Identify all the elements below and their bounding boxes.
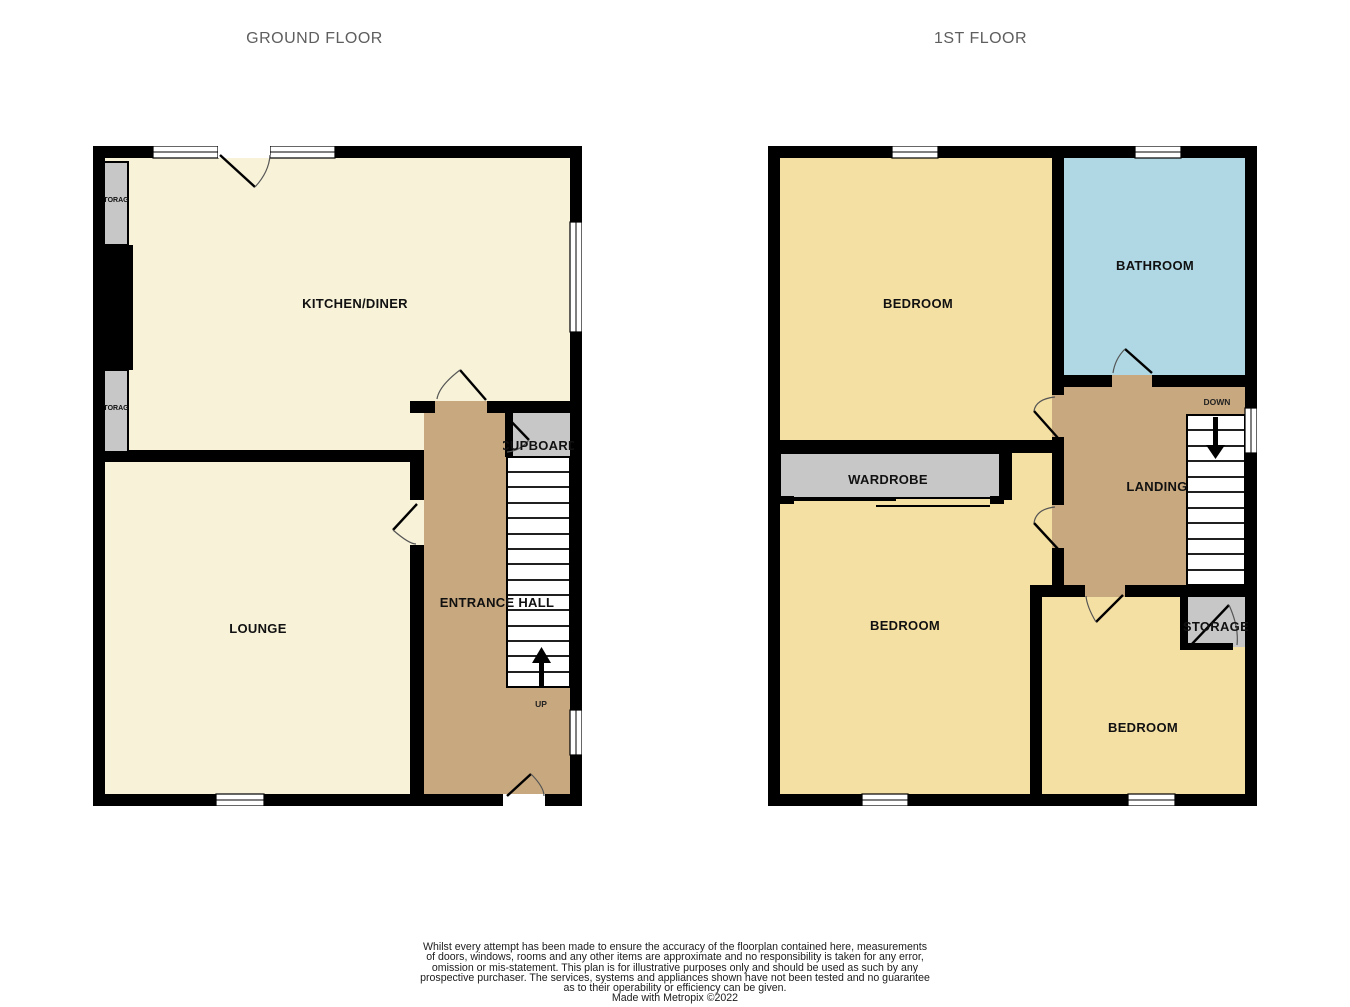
ff-wall-wardrobe-right-stub: [1000, 440, 1012, 500]
ff-label-wardrobe: WARDROBE: [848, 472, 928, 487]
gf-label-up: UP: [535, 699, 547, 709]
ff-door-gap-bedroom-rear-right: [1085, 585, 1125, 597]
ff-window-bottom-1: [862, 794, 908, 806]
gf-wall-hall-top-right: [487, 401, 570, 413]
ff-door-gap-bedroom-front: [1052, 395, 1064, 437]
ground-floor-plan: KITCHEN/DINER LOUNGE ENTRANCE HALL CUPBO…: [93, 146, 582, 806]
gf-label-kitchen-diner: KITCHEN/DINER: [302, 296, 408, 311]
gf-door-gap-kitchen-hall: [435, 401, 487, 413]
gf-window-bottom-lounge: [216, 794, 264, 806]
ff-label-storage: STORAGE: [1183, 619, 1249, 634]
floorplan-page: GROUND FLOOR 1ST FLOOR: [0, 0, 1350, 1007]
gf-label-entrance-hall: ENTRANCE HALL: [440, 595, 554, 610]
first-floor-plan: BEDROOM BATHROOM LANDING WARDROBE BEDROO…: [768, 146, 1257, 806]
gf-door-gap-lounge: [410, 500, 424, 545]
gf-wall-lounge-hall-upper: [410, 450, 424, 500]
ff-label-bedroom-rear-right: BEDROOM: [1108, 720, 1178, 735]
credit-line: Made with Metropix ©2022: [0, 993, 1350, 1003]
gf-window-right-hall: [570, 710, 582, 755]
ff-wall-storage-bottom: [1188, 643, 1233, 650]
gf-wall-hall-top-left: [410, 401, 435, 413]
ff-wall-bedrooms-divider: [1030, 597, 1042, 794]
gf-stairs: [507, 457, 570, 687]
ff-room-bedroom-rear-left-nook: [1030, 453, 1052, 585]
ff-window-right-stairs: [1245, 408, 1257, 453]
ff-label-bedroom-rear-left: BEDROOM: [870, 618, 940, 633]
gf-label-lounge: LOUNGE: [229, 621, 286, 636]
ff-label-bedroom-front: BEDROOM: [883, 296, 953, 311]
ground-floor-title: GROUND FLOOR: [70, 30, 559, 48]
ff-wall-bathroom-bottom: [1064, 375, 1245, 387]
ff-door-gap-bathroom: [1112, 375, 1152, 387]
ff-label-down: DOWN: [1204, 397, 1231, 407]
ff-window-bottom-2: [1128, 794, 1175, 806]
ff-stairs: [1187, 415, 1245, 585]
first-floor-title: 1ST FLOOR: [736, 30, 1225, 48]
gf-window-right-kitchen: [570, 222, 582, 332]
ff-door-gap-bedroom-rear-left: [1052, 505, 1064, 548]
gf-wall-lounge-hall-lower: [410, 545, 424, 794]
gf-chimney-block: [103, 245, 133, 370]
gf-label-cupboard: CUPBOARD: [500, 438, 578, 453]
gf-window-top-2: [270, 146, 335, 158]
gf-window-top-1: [153, 146, 218, 158]
disclaimer: Whilst every attempt has been made to en…: [0, 942, 1350, 1004]
ff-window-top-1: [892, 146, 938, 158]
ff-label-landing: LANDING: [1126, 479, 1187, 494]
ff-window-top-2: [1135, 146, 1181, 158]
ff-label-bathroom: BATHROOM: [1116, 258, 1194, 273]
